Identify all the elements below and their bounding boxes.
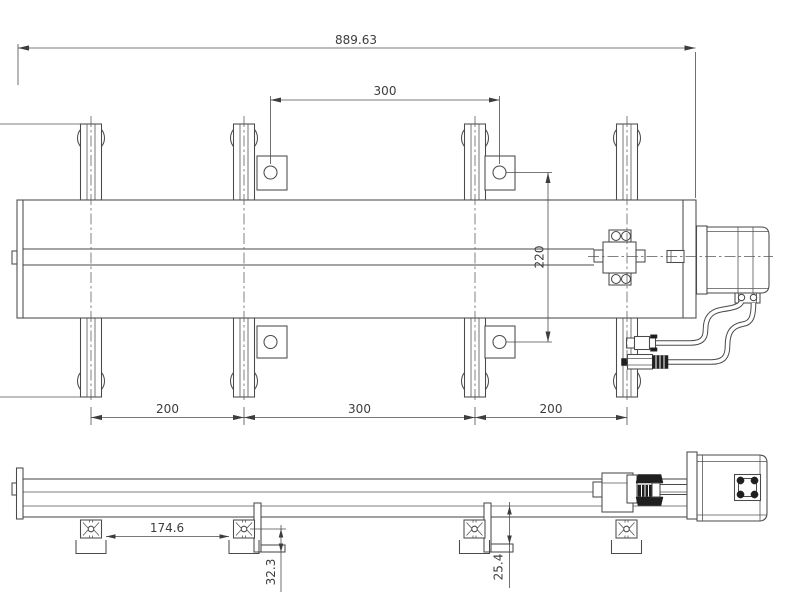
dim-table-width-label: 220 xyxy=(533,246,547,269)
mounting-feet-bottom xyxy=(78,318,641,397)
dimension-foot-pitch-chain: 200 300 200 xyxy=(91,402,627,425)
foot-profile xyxy=(76,520,106,554)
foot-profile xyxy=(612,520,642,554)
dimension-base-plate-gap: 174.6 xyxy=(106,521,229,539)
dsub-connector xyxy=(627,475,663,506)
top-view: 889.63 300 220 200 300 200 xyxy=(0,33,773,425)
dim-foot-pitch-right-label: 200 xyxy=(540,402,563,416)
mounting-feet-top xyxy=(78,124,641,200)
motor-flange-top xyxy=(697,226,708,294)
dimension-overall-length: 889.63 xyxy=(18,33,696,198)
motor-side-view xyxy=(687,452,767,521)
dim-foot-pitch-mid-label: 300 xyxy=(348,402,371,416)
dim-foot-pitch-left-label: 200 xyxy=(156,402,179,416)
dim-rail-to-bracket-label: 25.4 xyxy=(492,554,506,581)
dim-bracket-drop-label: 32.3 xyxy=(264,559,278,586)
left-end-boss xyxy=(12,251,17,264)
dim-sensor-pitch-label: 300 xyxy=(374,84,397,98)
rail-body-side-view xyxy=(23,479,687,517)
dim-base-plate-gap-label: 174.6 xyxy=(150,521,184,535)
motor-top-view xyxy=(697,226,770,303)
left-end-cap-side xyxy=(17,468,24,519)
side-view: 174.6 32.3 25.4 xyxy=(12,452,767,592)
linear-actuator-drawing: 889.63 300 220 200 300 200 xyxy=(0,0,800,600)
dim-overall-length-label: 889.63 xyxy=(335,33,377,47)
cad-drawing-canvas: 889.63 300 220 200 300 200 xyxy=(0,0,800,600)
cable-plug-lower xyxy=(622,355,669,370)
left-end-boss-side xyxy=(12,483,17,495)
motor-flange-side xyxy=(687,452,697,519)
